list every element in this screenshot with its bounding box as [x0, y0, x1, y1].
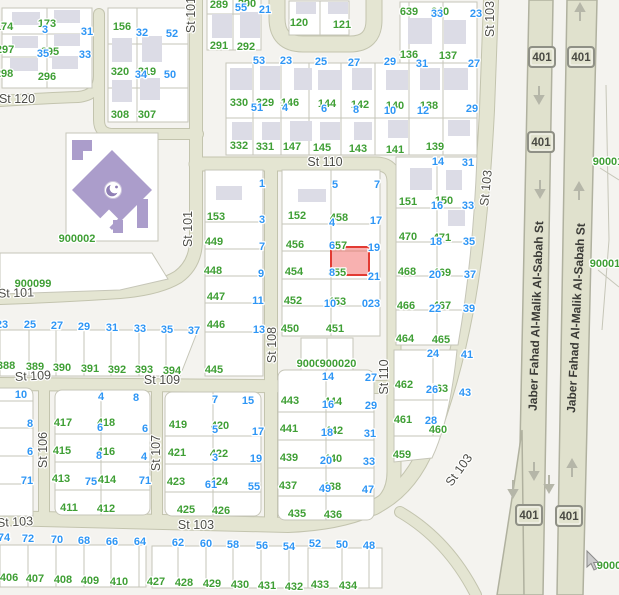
address-number: 55: [235, 2, 247, 14]
parcel-number: 426: [212, 505, 230, 517]
street-name-label: St 110: [377, 359, 391, 394]
svg-text:401: 401: [559, 511, 579, 523]
address-number: 72: [22, 533, 34, 545]
address-number: 43: [459, 387, 471, 399]
route-401-shield: 401: [568, 47, 594, 67]
parcel-number: 409: [81, 575, 99, 587]
parcel-number: 145: [313, 142, 331, 154]
parcel-number: 90001: [590, 258, 619, 270]
parcel-number: 137: [439, 50, 457, 62]
svg-text:401: 401: [531, 137, 551, 149]
address-number: 48: [363, 540, 375, 552]
parcel-number: 443: [281, 395, 299, 407]
address-number: 25: [315, 56, 327, 68]
address-number: 75: [85, 476, 97, 488]
parcel-number: 289: [210, 0, 228, 11]
parcel-number: 330: [230, 97, 248, 109]
address-number: 4: [282, 102, 289, 114]
street-name-label: St 120: [0, 92, 35, 106]
parcel-number: 151: [399, 196, 417, 208]
parcel-number: 433: [311, 579, 329, 591]
address-number: 29: [365, 400, 377, 412]
address-number: 4: [98, 391, 105, 403]
parcel-number: 308: [111, 109, 129, 121]
address-number: 27: [348, 57, 360, 69]
address-number: 49: [319, 483, 331, 495]
address-number: 15: [242, 395, 254, 407]
address-number: 3: [259, 214, 265, 226]
address-number: 35: [161, 324, 173, 336]
route-401-shield: 401: [529, 47, 555, 67]
address-number: 55: [248, 481, 260, 493]
parcel-number: 456: [286, 239, 304, 251]
address-number: 66: [106, 536, 118, 548]
address-number: 33: [134, 323, 146, 335]
address-number: 47: [362, 484, 374, 496]
parcel-number: 454: [285, 266, 304, 278]
parcel-number: 392: [108, 364, 126, 376]
parcel-number: 174: [0, 21, 14, 33]
parcel-number: 429: [203, 578, 221, 590]
address-number: 33: [431, 8, 443, 20]
address-number: 12: [417, 105, 429, 117]
address-number: 14: [322, 371, 335, 383]
address-number: 22: [429, 303, 441, 315]
parcel-number: 298: [0, 68, 13, 80]
street-name-label: St 101: [184, 0, 198, 33]
address-number: 68: [78, 535, 90, 547]
street-name-label: St 109: [15, 368, 52, 384]
parcel-number: 435: [288, 508, 306, 520]
address-number: 71: [21, 475, 33, 487]
parcel-number: 410: [110, 576, 128, 588]
parcel-number: 432: [285, 581, 303, 593]
parcel-number: 445: [205, 364, 223, 376]
parcel-number: 296: [38, 71, 56, 83]
parcel-number: 388: [0, 360, 15, 372]
address-number: 52: [309, 538, 321, 550]
street-ramp: [400, 512, 476, 595]
address-number: 9: [258, 268, 264, 280]
parcel-number: 156: [113, 21, 131, 33]
address-number: 6: [97, 422, 103, 434]
address-number: 27: [365, 372, 377, 384]
parcel-number: 143: [349, 143, 367, 155]
address-number: 14: [432, 156, 445, 168]
parcel-number: 147: [283, 141, 301, 153]
address-number: 19: [250, 453, 262, 465]
address-number: 21: [368, 271, 380, 283]
address-number: 10: [324, 298, 336, 310]
parcel-number: 451: [326, 323, 344, 335]
route-401-shield: 401: [516, 505, 542, 525]
parcel-number: 425: [177, 504, 195, 516]
parcel-number: 419: [169, 419, 187, 431]
address-number: 27: [468, 58, 480, 70]
parcel-number: 441: [280, 423, 298, 435]
address-number: 62: [172, 537, 184, 549]
parcel-number: 436: [324, 509, 342, 521]
address-number: 16: [431, 200, 443, 212]
address-number: 24: [427, 348, 440, 360]
parcel-number: 292: [237, 41, 255, 53]
street-name-label: St 101: [181, 211, 195, 247]
street-name-label: St 108: [265, 327, 279, 363]
address-number: 8: [96, 450, 102, 462]
address-number: 60: [200, 538, 212, 550]
parcel-number: 390: [53, 362, 71, 374]
map-canvas[interactable]: 4014014014014011741732972952982961563203…: [0, 0, 619, 595]
parcel-number: 466: [397, 300, 415, 312]
street-name-label: St 103: [443, 451, 476, 489]
parcel-number: 428: [175, 577, 193, 589]
address-number: 37: [464, 269, 476, 281]
parcel-number: 421: [168, 447, 186, 459]
address-number: 8: [27, 418, 33, 430]
address-number: 53: [253, 55, 265, 67]
block: [394, 350, 457, 462]
parcel-number: 413: [52, 473, 70, 485]
route-401-shield: 401: [528, 132, 554, 152]
parcel-number: 412: [97, 503, 115, 515]
address-number: 35: [37, 48, 49, 60]
address-number: 7: [212, 394, 218, 406]
address-number: 74: [0, 532, 11, 544]
address-number: 16: [322, 399, 334, 411]
address-number: 50: [164, 69, 176, 81]
parcel-number: 153: [207, 211, 225, 223]
down-arrow-icon: [545, 475, 553, 492]
address-number: 3: [212, 452, 218, 464]
svg-text:401: 401: [571, 52, 591, 64]
address-number: 33: [462, 200, 474, 212]
address-number: 27: [51, 320, 63, 332]
address-number: 6: [321, 103, 327, 115]
parcel-number: 307: [138, 109, 156, 121]
address-number: 33: [79, 49, 91, 61]
street-name-label: St 106: [36, 432, 50, 468]
parcel-number: 462: [395, 379, 413, 391]
address-number: 13: [253, 324, 265, 336]
address-number: 31: [81, 26, 93, 38]
address-number: 6: [142, 423, 148, 435]
parcel-number: 427: [147, 576, 165, 588]
address-number: 6: [329, 240, 335, 252]
address-number: 11: [252, 295, 264, 307]
parcel-number: 446: [207, 319, 225, 331]
address-number: 31: [364, 428, 376, 440]
address-number: 23: [470, 8, 482, 20]
address-number: 5: [212, 424, 218, 436]
address-number: 51: [251, 102, 263, 114]
parcel-number: 450: [281, 323, 299, 335]
address-number: 17: [252, 426, 264, 438]
address-number: 29: [466, 103, 478, 115]
parcel-number: 411: [60, 502, 78, 514]
address-number: 31: [416, 58, 428, 70]
crescent-icon: [105, 182, 122, 199]
street-name-label: St 107: [149, 435, 163, 471]
parcel-number: 320: [111, 66, 129, 78]
boundary-line: [602, 85, 609, 330]
parcel-number: 452: [284, 295, 302, 307]
parcel-number: 414: [98, 474, 117, 486]
address-number: 4: [329, 217, 336, 229]
parcel-number: 331: [256, 141, 274, 153]
address-number: 18: [430, 236, 442, 248]
parcel-number: 90001: [593, 156, 619, 168]
svg-text:401: 401: [532, 52, 552, 64]
address-number: 61: [205, 479, 217, 491]
parcel-number: 900020: [320, 358, 357, 370]
parcel-number: 139: [426, 141, 444, 153]
parcel-number: 465: [432, 334, 450, 346]
address-number: 26: [426, 384, 438, 396]
parcel-number: 417: [54, 417, 72, 429]
address-number: 4: [141, 451, 148, 463]
parcel-number: 9000: [597, 560, 619, 572]
parcel-number: 415: [53, 445, 71, 457]
parcel-number: 639: [400, 6, 418, 18]
address-number: 7: [374, 179, 380, 191]
address-number: 20: [320, 455, 332, 467]
parcel-number: 141: [386, 144, 404, 156]
address-number: 1: [259, 178, 265, 190]
parcel-number: 900002: [59, 233, 96, 245]
parcel-number: 449: [205, 236, 223, 248]
address-number: 23: [280, 55, 292, 67]
route-401-shield: 401: [556, 506, 582, 526]
address-number: 5: [332, 179, 338, 191]
parcel-number: 437: [279, 480, 297, 492]
parcel-number: 152: [288, 210, 306, 222]
address-number: 33: [363, 456, 375, 468]
parcel-number: 120: [290, 17, 308, 29]
address-number: 54: [283, 541, 296, 553]
address-number: 023: [362, 298, 380, 310]
street-name-label: St 103: [477, 169, 495, 206]
address-number: 31: [462, 157, 474, 169]
address-number: 20: [429, 269, 441, 281]
address-number: 64: [134, 536, 147, 548]
parcel-number: 464: [396, 333, 415, 345]
parcel-number: 470: [399, 231, 417, 243]
parcel-number: 447: [207, 291, 225, 303]
address-number: 39: [463, 303, 475, 315]
address-number: 28: [425, 415, 437, 427]
parcel-number: 434: [339, 580, 358, 592]
parcel-number: 439: [280, 452, 298, 464]
parcel-number: 406: [0, 572, 18, 584]
parcel-number: 459: [393, 449, 411, 461]
parcel-number: 121: [333, 19, 351, 31]
address-number: 6: [27, 446, 33, 458]
parcel-number: 468: [398, 266, 416, 278]
parcel-number: 423: [167, 476, 185, 488]
parcel-number: 391: [81, 363, 99, 375]
address-number: 56: [256, 540, 268, 552]
address-number: 52: [166, 28, 178, 40]
address-number: 29: [384, 56, 396, 68]
address-number: 10: [384, 105, 396, 117]
parcel-number: 408: [54, 574, 72, 586]
svg-text:401: 401: [519, 510, 539, 522]
address-number: 3: [42, 24, 48, 36]
parcel-number: 448: [204, 265, 222, 277]
address-number: 7: [259, 241, 265, 253]
parcel-number: 430: [231, 579, 249, 591]
parcel-number: 332: [230, 140, 248, 152]
address-number: 8: [133, 392, 139, 404]
street-name-label: St 103: [0, 514, 33, 530]
street-name-label: St 103: [483, 1, 497, 37]
parcel-number: 291: [210, 40, 228, 52]
street-name-label: St 110: [307, 155, 342, 169]
address-number: 18: [321, 427, 333, 439]
address-number: 17: [370, 215, 382, 227]
address-number: 71: [139, 475, 151, 487]
map-viewport[interactable]: 4014014014014011741732972952982961563203…: [0, 0, 619, 595]
address-number: 8: [353, 104, 359, 116]
parcel-number: 297: [0, 44, 14, 56]
address-number: 21: [259, 4, 271, 16]
street-name-label: St 103: [178, 518, 214, 532]
address-number: 25: [24, 319, 36, 331]
address-number: 10: [15, 389, 27, 401]
address-number: 19: [368, 242, 380, 254]
address-number: 32: [136, 27, 148, 39]
parcel-number: 431: [258, 580, 276, 592]
address-number: 58: [227, 539, 239, 551]
address-number: 23: [0, 319, 8, 331]
address-number: 37: [188, 325, 200, 337]
address-number: 34: [135, 69, 148, 81]
address-number: 50: [336, 539, 348, 551]
address-number: 29: [78, 321, 90, 333]
address-number: 35: [463, 236, 475, 248]
street-name-label: St 109: [144, 373, 180, 387]
address-number: 70: [51, 534, 63, 546]
parcel-number: 461: [394, 414, 412, 426]
address-number: 31: [106, 322, 118, 334]
address-number: 8: [329, 267, 335, 279]
address-number: 41: [461, 349, 473, 361]
street-name-label: St 101: [0, 285, 34, 300]
parcel-number: 407: [26, 573, 44, 585]
